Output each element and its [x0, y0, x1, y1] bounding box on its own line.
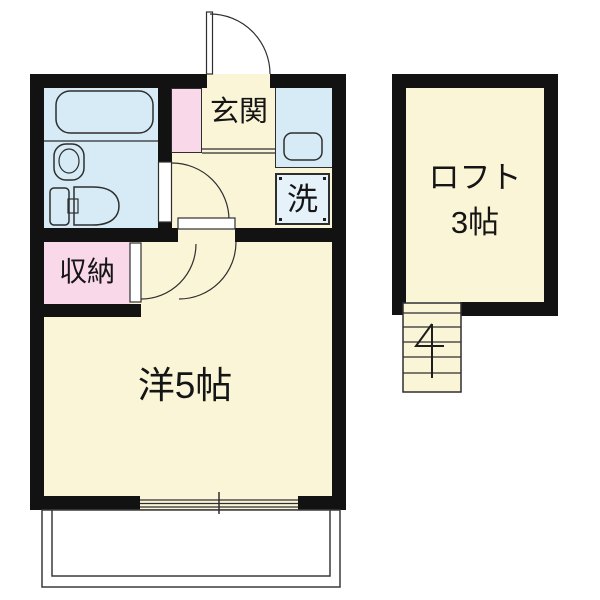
- laundry-corner-dot-tl: [279, 177, 282, 180]
- balcony-inner-rail: [52, 510, 330, 576]
- main-room-label: 洋5帖: [90, 367, 280, 404]
- floorplan-canvas: 玄関 洗 収納 洋5帖 ロフト 3帖: [0, 0, 600, 600]
- toilet-tank: [50, 188, 69, 225]
- bathroom-door-leaf: [159, 162, 172, 222]
- laundry-label: 洗: [275, 184, 330, 215]
- closet-door-swing-arc: [141, 244, 196, 299]
- loft-label-line2: 3帖: [406, 207, 544, 238]
- laundry-corner-dot-tr: [323, 177, 326, 180]
- entrance-label: 玄関: [200, 98, 278, 127]
- room-door-swing-arc: [179, 242, 236, 299]
- loft-label-line1: ロフト: [406, 162, 544, 193]
- loft-label: ロフト 3帖: [406, 162, 544, 238]
- bathroom-door-swing-arc: [172, 163, 229, 220]
- storage-label: 収納: [44, 258, 130, 286]
- room-door-leaf: [178, 218, 235, 229]
- closet-door-leaf: [130, 243, 141, 302]
- entrance-door-leaf: [207, 12, 213, 74]
- wash-basin-bowl: [59, 149, 79, 173]
- toilet-bowl: [74, 187, 119, 225]
- bathtub: [56, 91, 153, 133]
- laundry-corner-dot-bl: [279, 218, 282, 221]
- laundry-corner-dot-br: [323, 218, 326, 221]
- kitchen-sink: [284, 133, 322, 160]
- entrance-door-swing-arc: [210, 14, 270, 74]
- plan-linework: [0, 0, 600, 600]
